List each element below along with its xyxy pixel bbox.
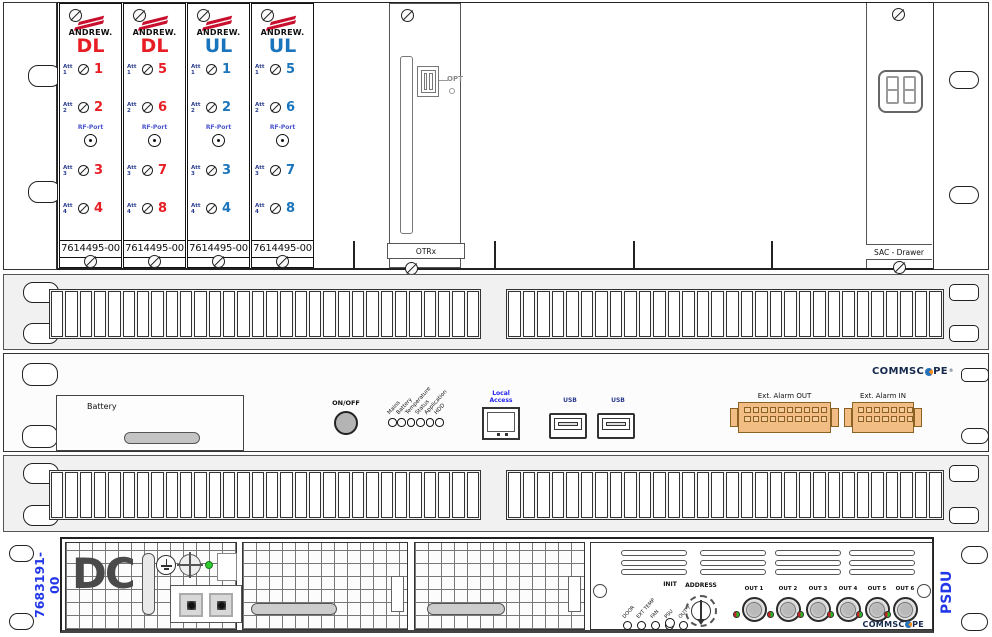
att-label: Att 2	[63, 102, 78, 114]
module-handle	[142, 553, 155, 615]
alarm-pin	[858, 407, 864, 413]
alarm-pin	[891, 416, 897, 422]
att-port-number: 6	[158, 100, 167, 115]
out-connector-5	[865, 597, 890, 622]
vent-panel-1	[3, 274, 989, 350]
att-row-1: Att 11	[191, 62, 248, 77]
att-row-3: Att 33	[63, 163, 120, 178]
grille-slat	[409, 472, 421, 518]
att-screw-icon	[142, 64, 153, 75]
dc-connector-block	[170, 585, 242, 623]
grille-slat	[842, 472, 855, 518]
att-screw-icon	[142, 203, 153, 214]
adjustment-knob-icon	[179, 554, 201, 576]
alarm-pin	[770, 407, 777, 413]
grille-slat	[508, 291, 521, 337]
alarm-pin	[770, 416, 777, 422]
ext-alarm-in-connector	[852, 402, 914, 433]
commscope-logo: COMMSCPE®	[872, 366, 954, 377]
module-handle	[251, 603, 337, 615]
grille-slat	[624, 472, 637, 518]
grille-slat	[266, 291, 278, 337]
out-status-led	[884, 611, 891, 618]
grille-slat	[537, 291, 550, 337]
address-rotary-switch	[685, 595, 717, 627]
alarm-pin	[874, 407, 880, 413]
att-screw-icon	[142, 102, 153, 113]
mounting-hole	[9, 613, 34, 630]
grille-slat	[828, 472, 841, 518]
att-label: Att 2	[127, 102, 142, 114]
grille-slat	[381, 472, 393, 518]
segment-digit	[903, 76, 916, 107]
mounting-hole	[22, 363, 58, 386]
grille-slat	[711, 291, 724, 337]
grille-slat	[610, 472, 623, 518]
att-row-3: Att 37	[255, 163, 312, 178]
alarm-pin	[899, 416, 905, 422]
equipment-rack-diagram: ANDREW.DLAtt 11Att 22Att 33Att 44RF-Port…	[0, 0, 992, 637]
alarm-pin	[787, 407, 794, 413]
att-port-number: 4	[94, 201, 103, 216]
grille-slat	[741, 472, 754, 518]
grille-slat	[194, 291, 206, 337]
vent-grille	[49, 289, 481, 339]
grille-slat	[180, 291, 192, 337]
local-access-label: Local Access	[480, 390, 522, 404]
grille-slat	[338, 291, 350, 337]
mounting-hole	[961, 613, 988, 631]
grille-slat	[323, 291, 335, 337]
rf-port-label: RF-Port	[124, 124, 185, 131]
ext-alarm-out-label: Ext. Alarm OUT	[738, 392, 831, 400]
usb-label: USB	[600, 397, 636, 404]
grille-slat	[799, 472, 812, 518]
connector-tab	[844, 408, 852, 427]
grille-slat	[886, 472, 899, 518]
grille-slat	[508, 472, 521, 518]
alarm-pin	[744, 416, 751, 422]
mounting-hole	[22, 425, 58, 448]
alarm-pin	[821, 407, 828, 413]
att-screw-icon	[78, 203, 89, 214]
grille-slat	[784, 472, 797, 518]
grille-slat	[151, 291, 163, 337]
grille-slat	[726, 472, 739, 518]
alarm-pin	[778, 407, 785, 413]
screw-icon	[893, 261, 906, 274]
globe-icon	[925, 368, 933, 376]
grille-slat	[770, 291, 783, 337]
master-unit: ANDREW.DLAtt 11Att 22Att 33Att 44RF-Port…	[3, 2, 989, 272]
grille-slat	[366, 291, 378, 337]
slot-divider	[353, 241, 355, 269]
vent-slot	[700, 550, 766, 556]
grille-slat	[537, 472, 550, 518]
grille-slat	[166, 291, 178, 337]
amplifier-card-1-dl: ANDREW.DLAtt 11Att 22Att 33Att 44RF-Port…	[59, 3, 122, 268]
vent-slot	[621, 550, 687, 556]
amplifier-card-4-ul: ANDREW.ULAtt 15Att 26Att 37Att 48RF-Port…	[251, 3, 314, 268]
amplifier-card-2-dl: ANDREW.DLAtt 15Att 26Att 37Att 48RF-Port…	[123, 3, 186, 268]
att-screw-icon	[78, 102, 89, 113]
att-port-number: 8	[158, 201, 167, 216]
address-label: ADDRESS	[671, 582, 731, 589]
vent-slot	[775, 550, 841, 556]
grille-slat	[424, 291, 436, 337]
grille-slat	[209, 472, 221, 518]
dc-module: DC	[65, 542, 237, 630]
grille-slat	[309, 291, 321, 337]
otrx-module: OPT OTRx	[389, 3, 461, 268]
grille-slat	[697, 291, 710, 337]
dc-label: DC	[72, 549, 134, 598]
andrew-swoosh-icon	[138, 19, 172, 28]
psdu-unit: 7683191-00 DC	[3, 535, 989, 635]
att-row-3: Att 33	[191, 163, 248, 178]
rf-port-connector	[84, 134, 97, 147]
psdu-part-number: 7683191-00	[32, 545, 58, 625]
usb-port-1	[549, 413, 587, 439]
grille-slat	[309, 472, 321, 518]
rf-port-connector	[148, 134, 161, 147]
grille-slat	[323, 472, 335, 518]
grille-slat	[915, 472, 928, 518]
battery-handle	[124, 432, 200, 444]
att-label: Att 2	[255, 102, 270, 114]
grille-slat	[726, 291, 739, 337]
vent-grille	[506, 470, 944, 520]
module-handle	[427, 603, 505, 615]
att-port-number: 8	[286, 201, 295, 216]
grille-slat	[395, 291, 407, 337]
alarm-pin	[778, 416, 785, 422]
grille-slat	[166, 472, 178, 518]
screw-icon	[212, 255, 225, 268]
psdu-name-label: PSDU	[939, 563, 963, 621]
grille-slat	[123, 291, 135, 337]
alarm-pin	[761, 416, 768, 422]
att-label: Att 3	[191, 165, 206, 177]
grille-slat	[566, 472, 579, 518]
led-door	[623, 621, 632, 630]
card-type-label: UL	[188, 36, 249, 57]
grille-slat	[857, 472, 870, 518]
psdu-front-panel: DC	[60, 537, 934, 633]
out-status-led	[827, 611, 834, 618]
alarm-pin	[804, 407, 811, 413]
att-screw-icon	[206, 102, 217, 113]
rf-port-connector	[276, 134, 289, 147]
grille-slat	[523, 472, 536, 518]
att-port-number: 1	[222, 62, 231, 77]
att-screw-icon	[270, 64, 281, 75]
grille-slat	[915, 291, 928, 337]
led-status	[416, 418, 425, 427]
alarm-pin	[874, 416, 880, 422]
att-label: Att 4	[191, 203, 206, 215]
card-type-label: DL	[124, 36, 185, 57]
grille-slat	[223, 291, 235, 337]
commscope-logo: COMMSCPE	[863, 620, 924, 629]
mounting-hole	[961, 368, 989, 382]
grille-slat	[857, 291, 870, 337]
alarm-pin	[804, 416, 811, 422]
grille-slat	[65, 472, 77, 518]
alarm-pin	[744, 407, 751, 413]
out-status-led	[733, 611, 740, 618]
grille-slat	[237, 291, 249, 337]
alarm-pin	[761, 407, 768, 413]
grille-slat	[813, 472, 826, 518]
screw-icon	[892, 8, 905, 21]
att-row-2: Att 26	[127, 100, 184, 115]
out-connector-3	[806, 597, 831, 622]
vent-slot	[700, 569, 766, 575]
panel-hole	[593, 584, 607, 598]
usb-port-2	[597, 413, 635, 439]
alarm-pin	[753, 416, 760, 422]
grille-slat	[595, 472, 608, 518]
sac-drawer: SAC - Drawer	[866, 3, 934, 268]
alarm-pin	[812, 416, 819, 422]
grille-slat	[295, 472, 307, 518]
andrew-swoosh-icon	[202, 19, 236, 28]
att-row-4: Att 48	[255, 201, 312, 216]
vent-panel-2	[3, 455, 989, 532]
card-type-label: DL	[60, 36, 121, 57]
led-application	[426, 418, 435, 427]
grille-slat	[94, 291, 106, 337]
alarm-pin	[821, 416, 828, 422]
att-port-number: 5	[158, 62, 167, 77]
grille-slat	[581, 472, 594, 518]
pin-row	[744, 416, 830, 422]
grille-slat	[80, 291, 92, 337]
att-port-number: 1	[94, 62, 103, 77]
grille-slat	[610, 291, 623, 337]
grille-slat	[668, 291, 681, 337]
grille-slat	[123, 472, 135, 518]
grille-slat	[65, 291, 77, 337]
vent-grille	[49, 470, 481, 520]
vent-slot	[775, 560, 841, 566]
grille-slat	[467, 472, 479, 518]
rf-port-label: RF-Port	[252, 124, 313, 131]
module-tab	[391, 576, 404, 612]
grille-slat	[682, 472, 695, 518]
out-status-led	[767, 611, 774, 618]
grille-slat	[668, 472, 681, 518]
vent-slot-group	[700, 550, 766, 579]
att-label: Att 3	[63, 165, 78, 177]
grille-slat	[900, 291, 913, 337]
att-label: Att 4	[63, 203, 78, 215]
att-screw-icon	[206, 203, 217, 214]
grille-slat	[194, 472, 206, 518]
pin-row	[858, 407, 913, 413]
opt-indicator	[449, 88, 455, 94]
att-screw-icon	[270, 165, 281, 176]
att-row-1: Att 15	[255, 62, 312, 77]
vent-slot	[700, 560, 766, 566]
opt-label: OPT	[447, 75, 463, 83]
alarm-pin	[795, 416, 802, 422]
vent-slot	[621, 569, 687, 575]
att-port-number: 3	[94, 163, 103, 178]
mounting-hole	[949, 507, 979, 524]
att-row-2: Att 22	[63, 100, 120, 115]
att-row-4: Att 44	[63, 201, 120, 216]
amplifier-card-3-ul: ANDREW.ULAtt 11Att 22Att 33Att 44RF-Port…	[187, 3, 250, 268]
mounting-hole	[9, 545, 34, 562]
andrew-swoosh-icon	[74, 19, 108, 28]
vent-slot-group	[849, 550, 915, 579]
grille-slat	[581, 291, 594, 337]
segment-digit	[886, 76, 899, 107]
panel-hole	[917, 584, 931, 598]
grille-slat	[409, 291, 421, 337]
grille-slat	[108, 472, 120, 518]
grille-slat	[280, 472, 292, 518]
out-status-led	[797, 611, 804, 618]
grille-slat	[237, 472, 249, 518]
att-label: Att 1	[63, 64, 78, 76]
grille-slat	[51, 291, 63, 337]
led-mains	[388, 418, 397, 427]
ground-symbol-icon	[156, 555, 176, 575]
grille-slat	[595, 291, 608, 337]
alarm-pin	[858, 416, 864, 422]
att-row-1: Att 11	[63, 62, 120, 77]
grille-slat	[352, 472, 364, 518]
mounting-hole	[949, 71, 979, 89]
grille-slat	[438, 472, 450, 518]
att-row-2: Att 26	[255, 100, 312, 115]
out-connector-1	[742, 597, 767, 622]
grille-slat	[871, 472, 884, 518]
att-row-4: Att 48	[127, 201, 184, 216]
sac-drawer-label: SAC - Drawer	[866, 244, 932, 260]
grille-slat	[842, 291, 855, 337]
connector-tab	[730, 408, 738, 427]
att-port-number: 4	[222, 201, 231, 216]
att-label: Att 4	[255, 203, 270, 215]
onoff-label: ON/OFF	[326, 399, 366, 407]
grille-slat	[523, 291, 536, 337]
grille-slat	[755, 291, 768, 337]
grille-slat	[828, 291, 841, 337]
att-port-number: 7	[158, 163, 167, 178]
grille-slat	[352, 291, 364, 337]
att-row-1: Att 15	[127, 62, 184, 77]
att-port-number: 2	[222, 100, 231, 115]
grille-slat	[452, 291, 464, 337]
rack-ear-right	[933, 2, 989, 270]
vent-slot	[849, 550, 915, 556]
grille-slat	[381, 291, 393, 337]
att-port-number: 7	[286, 163, 295, 178]
grille-slat	[209, 291, 221, 337]
att-screw-icon	[206, 165, 217, 176]
controller-unit: Battery ON/OFF MainsBatteryTemperatureSt…	[3, 353, 989, 452]
att-screw-icon	[206, 64, 217, 75]
ext-alarm-in-label: Ext. Alarm IN	[852, 392, 914, 400]
grille-slat	[395, 472, 407, 518]
alarm-pin	[907, 416, 913, 422]
grille-slat	[784, 291, 797, 337]
init-button	[665, 618, 675, 628]
grille-slat	[770, 472, 783, 518]
grille-slat	[266, 472, 278, 518]
green-led	[205, 561, 213, 569]
card-type-label: UL	[252, 36, 313, 57]
vent-slot	[849, 560, 915, 566]
led-ext-temp	[637, 621, 646, 630]
led-fan	[651, 621, 660, 630]
grille-slat	[682, 291, 695, 337]
pin-row	[744, 407, 830, 413]
grille-slat	[799, 291, 812, 337]
att-label: Att 3	[127, 165, 142, 177]
vent-slot	[621, 560, 687, 566]
label-plate	[217, 553, 237, 581]
grille-slat	[566, 291, 579, 337]
mounting-hole	[949, 325, 979, 342]
grille-slat	[741, 291, 754, 337]
optical-connector-icon	[417, 66, 439, 97]
psdu-control-panel: DOOREXT TEMPFANPSUOUT 7 INIT ADDRESS OUT…	[590, 542, 933, 630]
att-screw-icon	[270, 203, 281, 214]
att-screw-icon	[270, 102, 281, 113]
out-connector-2	[776, 597, 801, 622]
rack-ear-left	[3, 2, 57, 270]
led-label: FAN	[650, 609, 661, 620]
att-label: Att 3	[255, 165, 270, 177]
alarm-pin	[866, 407, 872, 413]
grille-slat	[180, 472, 192, 518]
usb-label: USB	[552, 397, 588, 404]
att-port-number: 3	[222, 163, 231, 178]
vent-slot-group	[775, 550, 841, 579]
dc-connector	[209, 593, 233, 617]
grille-slat	[639, 291, 652, 337]
vent-grille	[506, 289, 944, 339]
mounting-hole	[961, 428, 989, 444]
alarm-pin	[795, 407, 802, 413]
mounting-hole	[949, 284, 979, 301]
fan-module-1	[242, 542, 408, 630]
andrew-swoosh-icon	[266, 19, 300, 28]
grille-slat	[137, 291, 149, 337]
att-label: Att 4	[127, 203, 142, 215]
led-hdd	[435, 418, 444, 427]
otrx-label: OTRx	[387, 243, 465, 259]
grille-slat	[624, 291, 637, 337]
pin-row	[858, 416, 913, 422]
grille-slat	[438, 291, 450, 337]
mounting-hole	[949, 186, 979, 204]
led-temperature	[407, 418, 416, 427]
grille-slat	[467, 291, 479, 337]
alarm-pin	[907, 407, 913, 413]
grille-slat	[108, 291, 120, 337]
att-port-number: 5	[286, 62, 295, 77]
out-connector-6	[893, 597, 918, 622]
grille-slat	[252, 472, 264, 518]
led-battery	[397, 418, 406, 427]
grille-slat	[813, 291, 826, 337]
